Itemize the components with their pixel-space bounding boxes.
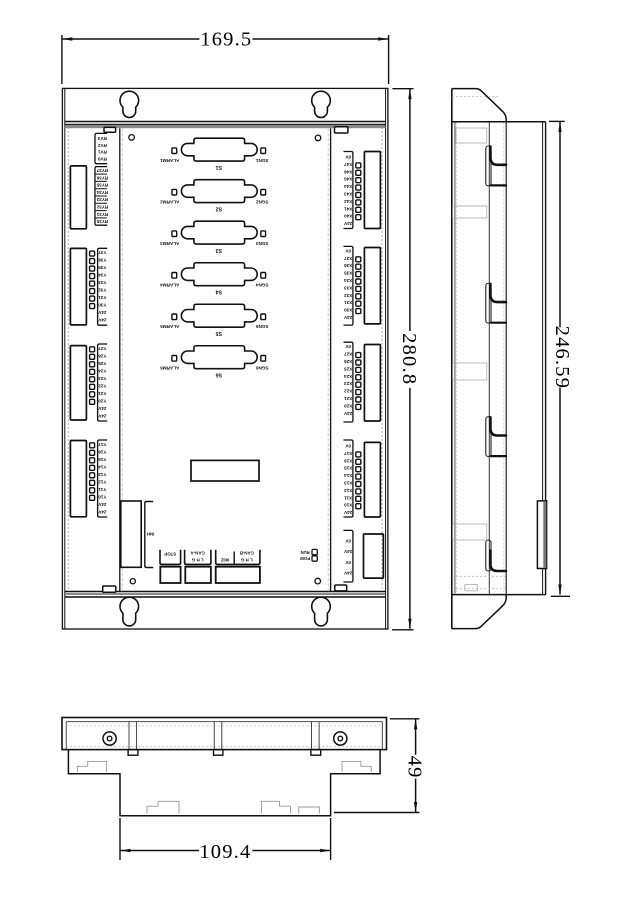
svg-text:S2: S2 bbox=[216, 205, 222, 211]
svg-text:X13: X13 bbox=[344, 481, 353, 486]
svg-text:Y26: Y26 bbox=[98, 353, 107, 358]
svg-text:Y13: Y13 bbox=[98, 472, 107, 477]
svg-text:X45: X45 bbox=[344, 177, 353, 182]
svg-text:0V: 0V bbox=[344, 444, 351, 449]
svg-text:24V: 24V bbox=[97, 509, 106, 514]
svg-text:SGN1: SGN1 bbox=[256, 158, 269, 163]
svg-text:X41: X41 bbox=[344, 206, 353, 211]
svg-text:X27: X27 bbox=[344, 352, 353, 357]
svg-text:X34: X34 bbox=[344, 278, 353, 283]
svg-text:POW: POW bbox=[300, 556, 310, 561]
svg-text:ALARM6: ALARM6 bbox=[160, 366, 180, 371]
svg-text:24V: 24V bbox=[343, 221, 352, 226]
svg-text:Y23: Y23 bbox=[98, 376, 107, 381]
svg-text:S6: S6 bbox=[216, 371, 222, 377]
svg-text:24V: 24V bbox=[97, 310, 106, 315]
svg-text:X17: X17 bbox=[344, 451, 353, 456]
svg-text:INH: INH bbox=[147, 532, 155, 537]
svg-text:SGN5: SGN5 bbox=[256, 324, 269, 329]
svg-text:X31: X31 bbox=[344, 300, 353, 305]
svg-text:246.59: 246.59 bbox=[551, 326, 573, 390]
svg-text:Y14: Y14 bbox=[98, 464, 107, 469]
svg-text:X20: X20 bbox=[344, 403, 353, 408]
svg-text:ALARM3: ALARM3 bbox=[160, 241, 180, 246]
svg-text:X15: X15 bbox=[344, 466, 353, 471]
svg-text:X33: X33 bbox=[344, 285, 353, 290]
svg-text:X37: X37 bbox=[344, 256, 353, 261]
svg-text:X14: X14 bbox=[344, 473, 353, 478]
svg-text:S5: S5 bbox=[216, 330, 222, 336]
svg-text:RY35: RY35 bbox=[96, 183, 108, 188]
svg-text:L H G: L H G bbox=[240, 557, 252, 562]
svg-text:X26: X26 bbox=[344, 359, 353, 364]
svg-text:RY30: RY30 bbox=[96, 219, 108, 224]
svg-text:24V: 24V bbox=[97, 413, 106, 418]
svg-text:X21: X21 bbox=[344, 396, 353, 401]
svg-text:Y31: Y31 bbox=[98, 295, 107, 300]
svg-text:Y15: Y15 bbox=[98, 457, 107, 462]
svg-text:STOP: STOP bbox=[164, 552, 176, 557]
svg-text:X47: X47 bbox=[344, 162, 353, 167]
svg-text:24V: 24V bbox=[343, 570, 352, 575]
svg-text:Y22: Y22 bbox=[98, 383, 107, 388]
svg-text:Y17: Y17 bbox=[98, 442, 107, 447]
svg-text:SGN2: SGN2 bbox=[256, 199, 269, 204]
svg-text:SGN3: SGN3 bbox=[256, 241, 269, 246]
svg-text:X22: X22 bbox=[344, 389, 353, 394]
svg-text:X10: X10 bbox=[344, 503, 353, 508]
svg-text:L H G: L H G bbox=[191, 557, 203, 562]
svg-text:0V: 0V bbox=[344, 560, 351, 565]
svg-text:24V: 24V bbox=[97, 502, 106, 507]
svg-text:0V: 0V bbox=[344, 344, 351, 349]
svg-text:24V: 24V bbox=[97, 318, 106, 323]
svg-text:169.5: 169.5 bbox=[200, 28, 252, 50]
svg-text:Y12: Y12 bbox=[98, 479, 107, 484]
svg-text:RV0: RV0 bbox=[98, 157, 107, 162]
svg-text:24V: 24V bbox=[97, 406, 106, 411]
svg-text:RY33: RY33 bbox=[96, 197, 108, 202]
svg-text:RV1: RV1 bbox=[98, 150, 107, 155]
svg-text:S1: S1 bbox=[216, 164, 222, 170]
svg-text:X32: X32 bbox=[344, 293, 353, 298]
svg-text:0I0Z: 0I0Z bbox=[220, 557, 229, 562]
svg-text:0V: 0V bbox=[344, 539, 351, 544]
svg-text:X36: X36 bbox=[344, 263, 353, 268]
svg-text:Y34: Y34 bbox=[98, 273, 107, 278]
svg-text:CAN-A: CAN-A bbox=[190, 551, 205, 556]
svg-text:Y35: Y35 bbox=[98, 265, 107, 270]
svg-text:0V: 0V bbox=[344, 155, 351, 160]
svg-text:ALARM4: ALARM4 bbox=[160, 283, 180, 288]
svg-text:RY34: RY34 bbox=[96, 190, 108, 195]
svg-text:X24: X24 bbox=[344, 374, 353, 379]
svg-text:X23: X23 bbox=[344, 381, 353, 386]
svg-text:RY31: RY31 bbox=[96, 212, 108, 217]
svg-text:Y30: Y30 bbox=[98, 303, 107, 308]
svg-text:X11: X11 bbox=[344, 495, 352, 500]
svg-text:Y37: Y37 bbox=[98, 250, 107, 255]
svg-text:X46: X46 bbox=[344, 169, 353, 174]
svg-text:ALARM2: ALARM2 bbox=[160, 199, 180, 204]
svg-text:Y32: Y32 bbox=[98, 288, 107, 293]
svg-text:24V: 24V bbox=[343, 510, 352, 515]
svg-text:X16: X16 bbox=[344, 458, 353, 463]
svg-text:RV2: RV2 bbox=[98, 143, 107, 148]
svg-text:X42: X42 bbox=[344, 199, 353, 204]
svg-text:RY32: RY32 bbox=[96, 205, 108, 210]
svg-text:X35: X35 bbox=[344, 271, 353, 276]
svg-text:S4: S4 bbox=[216, 288, 222, 294]
svg-text:ALARM1: ALARM1 bbox=[160, 158, 180, 163]
svg-text:SGN6: SGN6 bbox=[256, 366, 269, 371]
svg-text:X40: X40 bbox=[344, 214, 353, 219]
svg-text:24V: 24V bbox=[343, 549, 352, 554]
svg-text:0V: 0V bbox=[344, 248, 351, 253]
svg-text:RV3: RV3 bbox=[98, 136, 107, 141]
svg-text:24V: 24V bbox=[343, 411, 352, 416]
svg-text:X25: X25 bbox=[344, 366, 353, 371]
svg-text:X44: X44 bbox=[344, 184, 353, 189]
svg-text:CAN-B: CAN-B bbox=[240, 551, 254, 556]
svg-text:RUN: RUN bbox=[301, 550, 310, 555]
svg-text:Y16: Y16 bbox=[98, 449, 107, 454]
svg-text:S3: S3 bbox=[216, 247, 222, 253]
svg-text:Y25: Y25 bbox=[98, 361, 107, 366]
svg-text:Y24: Y24 bbox=[98, 368, 107, 373]
svg-text:X43: X43 bbox=[344, 192, 353, 197]
svg-text:Y36: Y36 bbox=[98, 258, 107, 263]
svg-text:49: 49 bbox=[404, 756, 426, 779]
svg-text:ALARM5: ALARM5 bbox=[160, 324, 180, 329]
svg-text:109.4: 109.4 bbox=[199, 841, 251, 863]
svg-text:Y21: Y21 bbox=[98, 391, 107, 396]
svg-text:Y27: Y27 bbox=[98, 346, 107, 351]
svg-text:Y33: Y33 bbox=[98, 280, 107, 285]
svg-text:RY36: RY36 bbox=[96, 175, 108, 180]
svg-text:X30: X30 bbox=[344, 308, 353, 313]
svg-text:24V: 24V bbox=[343, 315, 352, 320]
svg-text:Y20: Y20 bbox=[98, 398, 107, 403]
svg-text:Y11: Y11 bbox=[98, 487, 106, 492]
svg-text:X12: X12 bbox=[344, 488, 353, 493]
svg-text:SGN4: SGN4 bbox=[256, 283, 269, 288]
svg-text:280.8: 280.8 bbox=[398, 333, 420, 385]
svg-text:RY37: RY37 bbox=[96, 168, 108, 173]
svg-text:Y10: Y10 bbox=[98, 494, 107, 499]
